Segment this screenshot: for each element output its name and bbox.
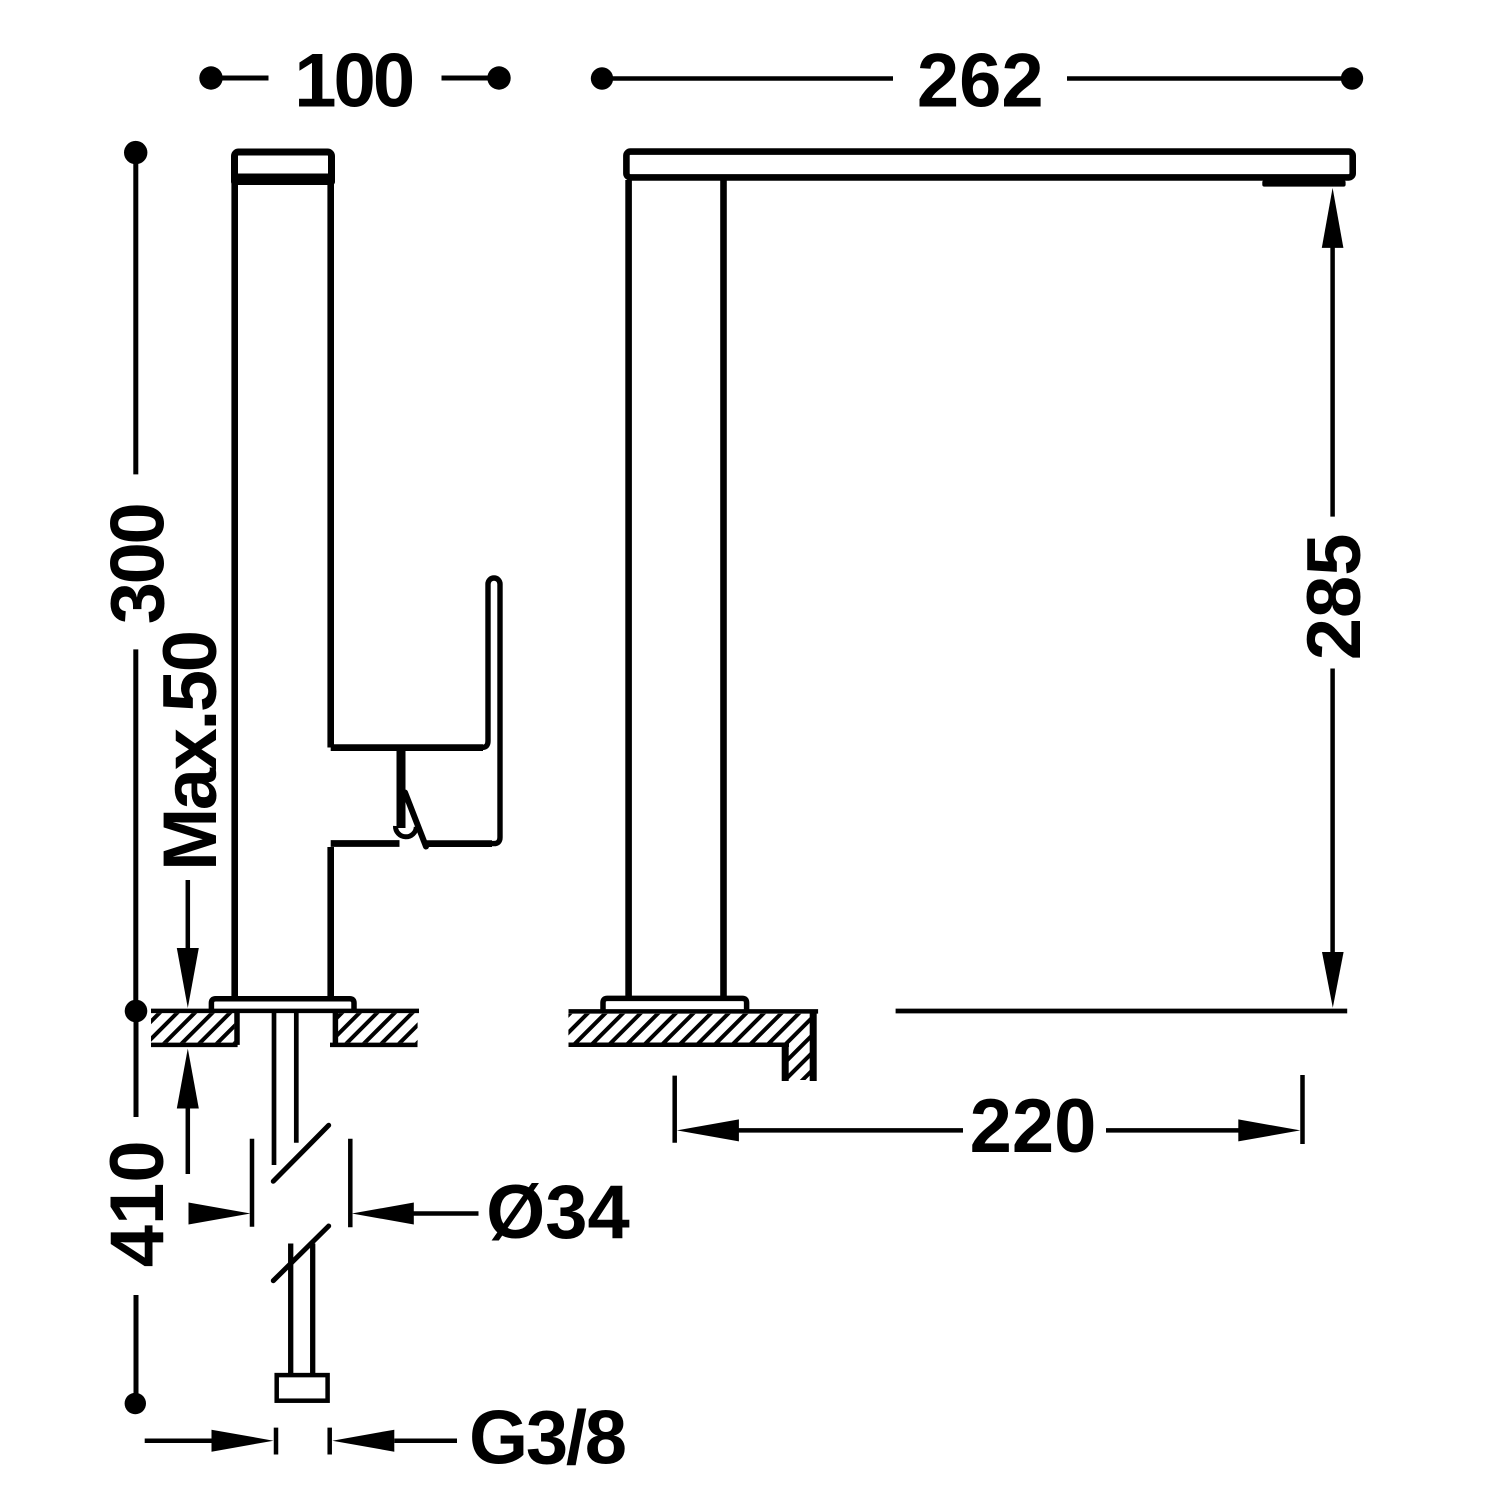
svg-text:100: 100: [294, 39, 415, 124]
svg-text:G3/8: G3/8: [469, 1396, 627, 1481]
svg-text:262: 262: [917, 39, 1044, 124]
svg-text:220: 220: [970, 1084, 1097, 1169]
svg-text:Max.50: Max.50: [148, 630, 233, 871]
svg-text:285: 285: [1292, 533, 1377, 660]
svg-text:Ø34: Ø34: [486, 1170, 630, 1255]
svg-text:300: 300: [95, 502, 180, 624]
svg-text:410: 410: [95, 1140, 180, 1267]
